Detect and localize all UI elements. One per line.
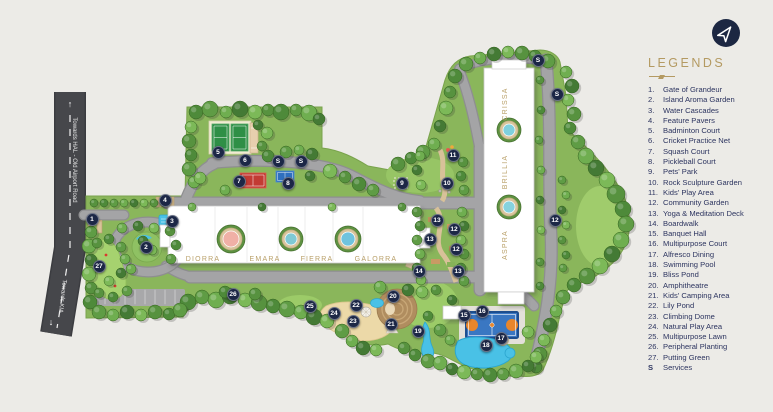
legend-item-number: 12. <box>648 198 663 208</box>
legend-item-number: 17. <box>648 250 663 260</box>
legend-item-15: 15.Banquet Hall <box>648 229 770 239</box>
road-arrow-down: ↓ <box>49 317 54 327</box>
legend-item-label: Feature Pavers <box>663 116 770 126</box>
tower-name-brillia: BRILLIA <box>502 155 509 189</box>
legend-item-number: 14. <box>648 219 663 229</box>
legend-item-label: Banquet Hall <box>663 229 770 239</box>
tower-name-galorra: GALORRA <box>355 256 398 263</box>
squash-court <box>240 173 266 188</box>
legend-item-17: 17.Alfresco Dining <box>648 250 770 260</box>
legend-item-number: 23. <box>648 312 663 322</box>
legend-item-label: Lily Pond <box>663 301 770 311</box>
legend-item-label: Swimming Pool <box>663 260 770 270</box>
badminton-court <box>209 121 251 154</box>
legend-item-label: Alfresco Dining <box>663 250 770 260</box>
legend-item-number: 15. <box>648 229 663 239</box>
legend-item-label: Peripheral Planting <box>663 342 770 352</box>
legend-item-number: 11. <box>648 188 663 198</box>
legend-item-13: 13.Yoga & Meditation Deck <box>648 209 770 219</box>
legend-item-number: 6. <box>648 136 663 146</box>
legend-item-label: Cricket Practice Net <box>663 136 770 146</box>
legend-item-number: 21. <box>648 291 663 301</box>
road-arrow-up: ↑ <box>68 99 73 109</box>
legend-item-label: Community Garden <box>663 198 770 208</box>
legend-item-19: 19.Bliss Pond <box>648 270 770 280</box>
legend-item-7: 7.Squash Court <box>648 147 770 157</box>
legend-item-3: 3.Water Cascades <box>648 106 770 116</box>
legend-item-20: 20.Amphitheatre <box>648 281 770 291</box>
legend-item-number: 27. <box>648 353 663 363</box>
legend-item-label: Badminton Court <box>663 126 770 136</box>
legend-item-number: 24. <box>648 322 663 332</box>
legend-item-label: Services <box>663 363 770 373</box>
legend-item-27: 27.Putting Green <box>648 353 770 363</box>
legend-item-s: SServices <box>648 363 770 373</box>
legend-panel: LEGENDS 1.Gate of Grandeur2.Island Aroma… <box>648 56 770 373</box>
tower-name-crissa: CRISSA <box>502 87 509 120</box>
legend-item-label: Climbing Dome <box>663 312 770 322</box>
legend-item-number: 10. <box>648 178 663 188</box>
legend-item-label: Kids' Play Area <box>663 188 770 198</box>
legend-item-label: Amphitheatre <box>663 281 770 291</box>
legend-item-label: Pickleball Court <box>663 157 770 167</box>
north-arrow <box>711 18 741 48</box>
legend-item-number: 25. <box>648 332 663 342</box>
site-map-canvas: ↑ Towards HAL - Old Airport Road Towards… <box>0 0 773 412</box>
legend-item-11: 11.Kids' Play Area <box>648 188 770 198</box>
tower-name-emara: EMARA <box>250 256 281 263</box>
legend-item-10: 10.Rock Sculpture Garden <box>648 178 770 188</box>
legend-divider <box>649 76 675 77</box>
legend-item-1: 1.Gate of Grandeur <box>648 85 770 95</box>
legend-item-label: Rock Sculpture Garden <box>663 178 770 188</box>
legend-item-9: 9.Pets' Park <box>648 167 770 177</box>
legend-item-2: 2.Island Aroma Garden <box>648 95 770 105</box>
legend-item-label: Natural Play Area <box>663 322 770 332</box>
legend-item-21: 21.Kids' Camping Area <box>648 291 770 301</box>
legend-item-8: 8.Pickleball Court <box>648 157 770 167</box>
legend-item-number: 13. <box>648 209 663 219</box>
tower-name-aspra: ASPRA <box>502 230 509 260</box>
legend-item-number: S <box>648 363 663 373</box>
legend-item-24: 24.Natural Play Area <box>648 322 770 332</box>
legend-item-5: 5.Badminton Court <box>648 126 770 136</box>
legend-item-number: 18. <box>648 260 663 270</box>
legend-item-number: 5. <box>648 126 663 136</box>
lily-pond <box>371 299 384 308</box>
legend-item-label: Multipurpose Court <box>663 239 770 249</box>
legend-title: LEGENDS <box>648 56 770 70</box>
legend-item-14: 14.Boardwalk <box>648 219 770 229</box>
legend-item-label: Boardwalk <box>663 219 770 229</box>
legend-item-label: Yoga & Meditation Deck <box>663 209 770 219</box>
legend-item-6: 6.Cricket Practice Net <box>648 136 770 146</box>
legend-item-23: 23.Climbing Dome <box>648 312 770 322</box>
legend-item-26: 26.Peripheral Planting <box>648 342 770 352</box>
legend-item-label: Kids' Camping Area <box>663 291 770 301</box>
legend-item-number: 4. <box>648 116 663 126</box>
alfresco-dining <box>498 335 509 346</box>
main-road: ↑ Towards HAL - Old Airport Road Towards… <box>49 92 77 334</box>
banquet-hall <box>443 306 461 319</box>
right-residences <box>484 60 534 304</box>
legend-item-label: Pets' Park <box>663 167 770 177</box>
legend-item-number: 8. <box>648 157 663 167</box>
legend-item-number: 1. <box>648 85 663 95</box>
legend-item-25: 25.Multipurpose Lawn <box>648 332 770 342</box>
road-label-top: Towards HAL - Old Airport Road <box>71 117 77 202</box>
legend-item-label: Multipurpose Lawn <box>663 332 770 342</box>
legend-item-number: 16. <box>648 239 663 249</box>
legend-item-22: 22.Lily Pond <box>648 301 770 311</box>
climbing-dome <box>361 307 371 317</box>
north-arrow-icon <box>711 18 741 48</box>
tower-name-fierra: FIERRA <box>301 256 334 263</box>
legend-item-label: Gate of Grandeur <box>663 85 770 95</box>
legend-item-number: 7. <box>648 147 663 157</box>
legend-item-label: Putting Green <box>663 353 770 363</box>
legend-item-4: 4.Feature Pavers <box>648 116 770 126</box>
legend-item-number: 20. <box>648 281 663 291</box>
multipurpose-court <box>466 312 518 338</box>
legend-item-number: 3. <box>648 106 663 116</box>
pickleball-court <box>276 171 294 182</box>
legend-item-label: Bliss Pond <box>663 270 770 280</box>
legend-item-number: 9. <box>648 167 663 177</box>
legend-list: 1.Gate of Grandeur2.Island Aroma Garden3… <box>648 85 770 373</box>
legend-item-label: Squash Court <box>663 147 770 157</box>
legend-item-number: 26. <box>648 342 663 352</box>
legend-item-16: 16.Multipurpose Court <box>648 239 770 249</box>
legend-item-number: 2. <box>648 95 663 105</box>
legend-item-18: 18.Swimming Pool <box>648 260 770 270</box>
legend-item-label: Water Cascades <box>663 106 770 116</box>
legend-item-number: 19. <box>648 270 663 280</box>
legend-item-12: 12.Community Garden <box>648 198 770 208</box>
tower-name-diorra: DIORRA <box>186 256 220 263</box>
legend-item-label: Island Aroma Garden <box>663 95 770 105</box>
legend-item-number: 22. <box>648 301 663 311</box>
